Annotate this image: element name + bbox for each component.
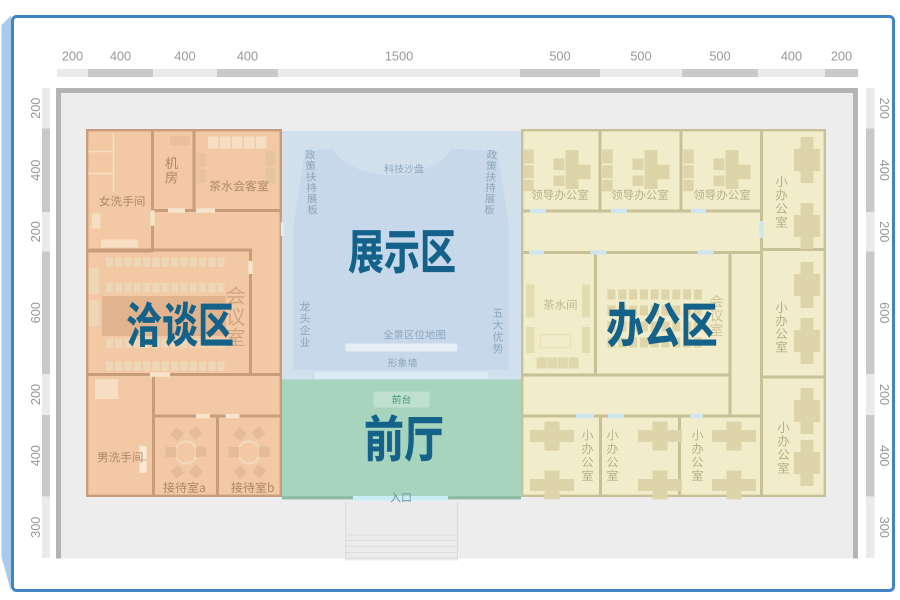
svg-text:1500: 1500 (385, 49, 413, 64)
svg-text:400: 400 (877, 445, 892, 466)
svg-text:400: 400 (28, 160, 43, 181)
svg-text:600: 600 (28, 302, 43, 323)
svg-text:600: 600 (877, 302, 892, 323)
svg-text:200: 200 (28, 98, 43, 119)
svg-text:400: 400 (110, 49, 131, 64)
svg-text:200: 200 (877, 98, 892, 119)
svg-text:200: 200 (62, 49, 83, 64)
svg-text:300: 300 (877, 517, 892, 538)
svg-text:500: 500 (549, 49, 570, 64)
svg-text:400: 400 (781, 49, 802, 64)
svg-text:300: 300 (28, 517, 43, 538)
svg-text:200: 200 (28, 221, 43, 242)
svg-text:500: 500 (709, 49, 730, 64)
svg-text:200: 200 (877, 384, 892, 405)
svg-text:200: 200 (877, 221, 892, 242)
svg-text:400: 400 (28, 445, 43, 466)
svg-text:400: 400 (877, 160, 892, 181)
svg-text:400: 400 (174, 49, 195, 64)
svg-text:500: 500 (630, 49, 651, 64)
svg-text:400: 400 (237, 49, 258, 64)
svg-text:200: 200 (831, 49, 852, 64)
svg-text:200: 200 (28, 384, 43, 405)
